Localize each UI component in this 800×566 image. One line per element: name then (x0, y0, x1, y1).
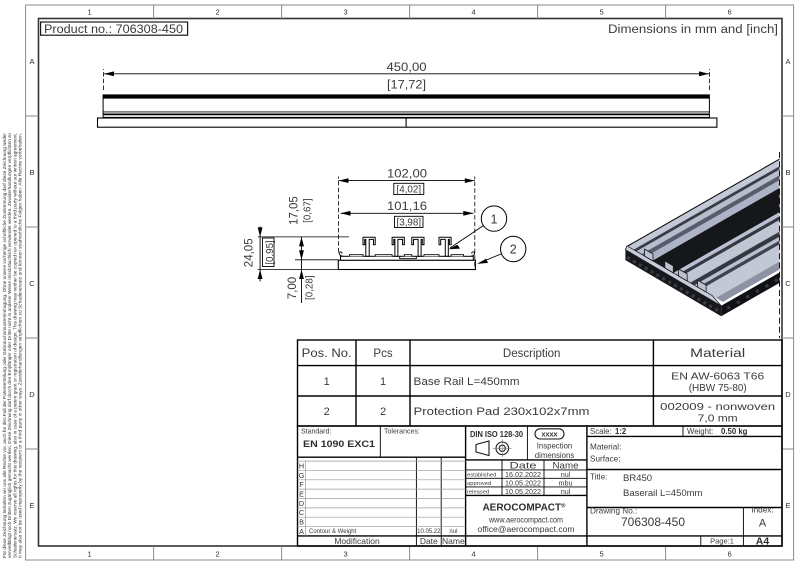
svg-text:dimensions: dimensions (535, 451, 575, 460)
svg-text:Base Rail L=450mm: Base Rail L=450mm (414, 376, 520, 388)
svg-text:3: 3 (344, 550, 348, 559)
svg-text:Material:: Material: (590, 443, 621, 452)
svg-text:Modification: Modification (334, 536, 380, 546)
svg-text:D: D (29, 390, 35, 399)
svg-text:[4,02]: [4,02] (397, 185, 422, 196)
svg-text:17,05: 17,05 (289, 196, 301, 225)
svg-text:10.05.2022: 10.05.2022 (505, 487, 541, 496)
svg-text:[0,28]: [0,28] (305, 275, 316, 300)
svg-text:450,00: 450,00 (387, 62, 427, 74)
svg-text:(HBW 75-80): (HBW 75-80) (689, 382, 747, 394)
svg-text:A: A (29, 57, 34, 66)
svg-text:nul: nul (561, 487, 571, 496)
svg-text:C: C (299, 508, 304, 517)
svg-text:1: 1 (491, 212, 498, 226)
svg-text:BR450: BR450 (623, 473, 652, 484)
svg-text:AEROCOMPACT®: AEROCOMPACT® (482, 503, 566, 514)
svg-text:B: B (29, 168, 34, 177)
svg-text:6: 6 (728, 550, 732, 559)
svg-text:Surface:: Surface: (590, 455, 621, 464)
svg-text:4: 4 (472, 550, 476, 559)
svg-text:EN 1090 EXC1: EN 1090 EXC1 (303, 439, 376, 450)
svg-text:[0,95]: [0,95] (265, 240, 276, 265)
svg-text:4: 4 (472, 8, 476, 17)
svg-text:1:2: 1:2 (615, 427, 627, 436)
svg-text:Weight:: Weight: (687, 427, 713, 436)
svg-text:D: D (299, 499, 304, 508)
svg-text:G: G (299, 471, 305, 480)
svg-text:Inspection: Inspection (537, 442, 573, 451)
svg-text:Dimensions in mm and [inch]: Dimensions in mm and [inch] (608, 24, 778, 36)
svg-text:2: 2 (216, 550, 220, 559)
svg-text:A: A (759, 518, 767, 530)
svg-text:It may also not be used improp: It may also not be used improperly by th… (18, 133, 23, 558)
svg-text:released: released (467, 490, 489, 496)
svg-text:Page:1: Page:1 (710, 537, 734, 546)
svg-text:2: 2 (380, 406, 386, 418)
svg-text:Index:: Index: (751, 506, 773, 515)
svg-text:102,00: 102,00 (387, 169, 427, 181)
svg-text:2: 2 (324, 406, 330, 418)
svg-text:F: F (299, 480, 304, 489)
svg-text:706308-450: 706308-450 (621, 515, 685, 529)
svg-text:002009 - nonwoven: 002009 - nonwoven (660, 401, 775, 413)
svg-text:3: 3 (344, 8, 348, 17)
svg-text:D: D (785, 390, 791, 399)
svg-text:nul: nul (449, 529, 457, 535)
svg-text:2: 2 (510, 243, 517, 257)
svg-text:0.50 kg: 0.50 kg (721, 427, 748, 436)
svg-text:E: E (29, 501, 34, 510)
svg-text:Name: Name (553, 460, 579, 470)
svg-text:EN AW-6063 T66: EN AW-6063 T66 (671, 371, 764, 383)
svg-text:A: A (299, 527, 304, 536)
svg-text:Contour & Weight: Contour & Weight (309, 529, 357, 535)
svg-text:7,00: 7,00 (287, 277, 299, 299)
svg-text:A4: A4 (756, 536, 770, 548)
svg-text:office@aerocompact.com: office@aerocompact.com (478, 525, 575, 534)
svg-text:7,0 mm: 7,0 mm (698, 413, 738, 425)
svg-text:E: E (299, 490, 304, 499)
svg-text:Date: Date (510, 460, 537, 470)
svg-text:Baserail L=450mm: Baserail L=450mm (623, 488, 703, 499)
svg-text:B: B (299, 518, 304, 527)
svg-text:5: 5 (600, 8, 604, 17)
svg-text:B: B (785, 168, 790, 177)
svg-text:Pos. No.: Pos. No. (302, 348, 352, 360)
svg-text:Protection Pad 230x102x7mm: Protection Pad 230x102x7mm (414, 406, 590, 418)
svg-text:[3,98]: [3,98] (397, 218, 422, 229)
svg-text:1: 1 (88, 8, 92, 17)
svg-text:1: 1 (380, 376, 386, 388)
svg-text:C: C (785, 279, 791, 288)
svg-text:[17,72]: [17,72] (387, 80, 426, 92)
svg-text:H: H (299, 461, 304, 470)
svg-text:[0,67]: [0,67] (303, 198, 314, 223)
svg-text:Standard:: Standard: (301, 429, 331, 436)
svg-text:xxxx: xxxx (542, 430, 558, 439)
svg-text:Description: Description (503, 348, 561, 360)
svg-text:E: E (785, 501, 790, 510)
svg-text:Material: Material (690, 348, 745, 360)
svg-text:established: established (467, 473, 496, 479)
svg-text:101,16: 101,16 (387, 201, 427, 213)
svg-text:A: A (785, 57, 790, 66)
svg-text:C: C (29, 279, 35, 288)
svg-text:2: 2 (216, 8, 220, 17)
svg-text:5: 5 (600, 550, 604, 559)
svg-text:6: 6 (728, 8, 732, 17)
svg-text:10.05.22: 10.05.22 (417, 529, 441, 535)
svg-text:DIN ISO 128-30: DIN ISO 128-30 (470, 430, 524, 439)
svg-text:Title:: Title: (590, 473, 607, 482)
svg-text:1: 1 (88, 550, 92, 559)
svg-text:24,05: 24,05 (244, 238, 256, 267)
svg-text:Date: Date (420, 536, 438, 546)
svg-text:approved: approved (467, 481, 491, 487)
svg-text:Product no.: 706308-450: Product no.: 706308-450 (44, 24, 183, 36)
svg-text:www.aerocompact.com: www.aerocompact.com (488, 516, 563, 525)
svg-text:Scale:: Scale: (590, 427, 612, 436)
svg-text:Tolerances:: Tolerances: (384, 429, 420, 436)
svg-text:Pcs: Pcs (373, 348, 392, 360)
svg-text:Name: Name (442, 536, 465, 546)
svg-text:1: 1 (324, 376, 330, 388)
